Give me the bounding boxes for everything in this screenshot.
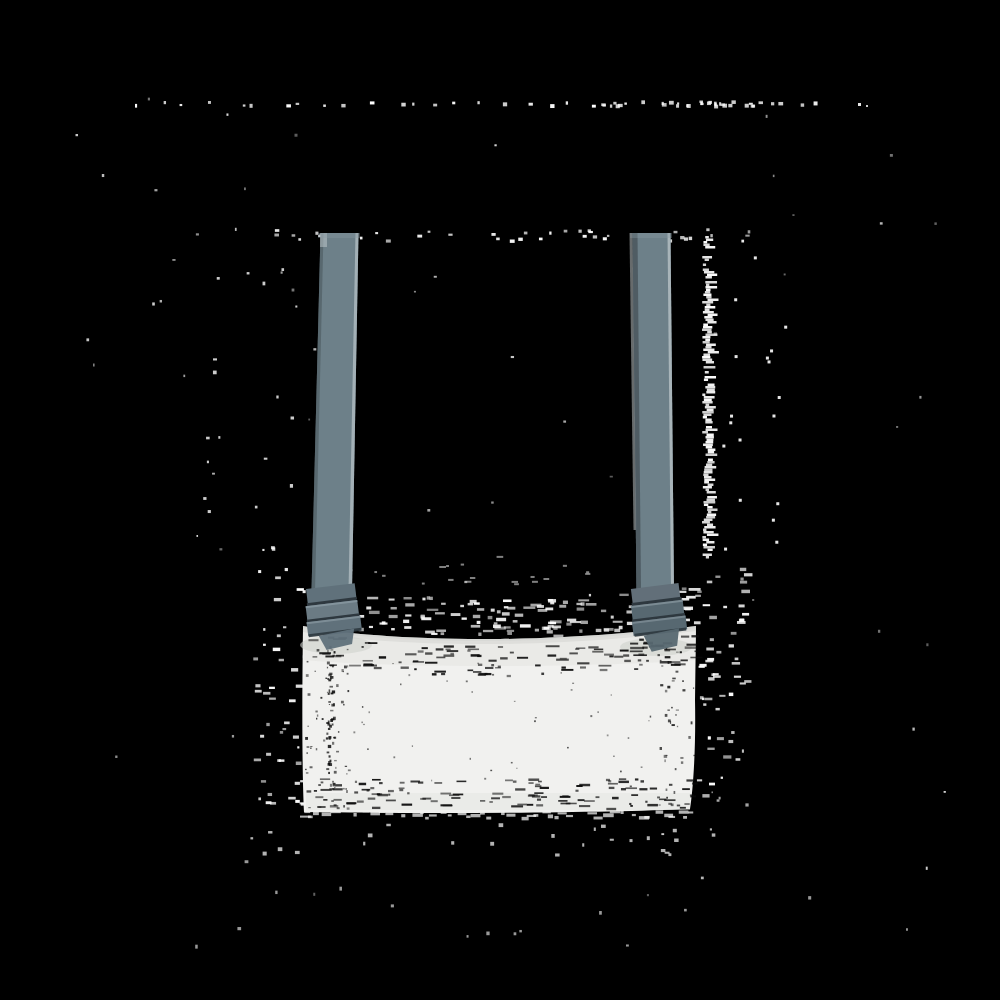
bag-product-illustration <box>0 0 1000 1000</box>
dither-noise-right-band <box>702 236 787 559</box>
dither-noise-left-speckles <box>203 268 297 571</box>
product-image-canvas <box>0 0 1000 1000</box>
shoulder-strap-left <box>312 233 361 591</box>
strap-right-top-fade <box>630 233 672 238</box>
shoulder-strap-right <box>630 233 675 591</box>
strap-left-top-fade <box>318 233 360 238</box>
dither-noise-top-line <box>135 100 868 108</box>
